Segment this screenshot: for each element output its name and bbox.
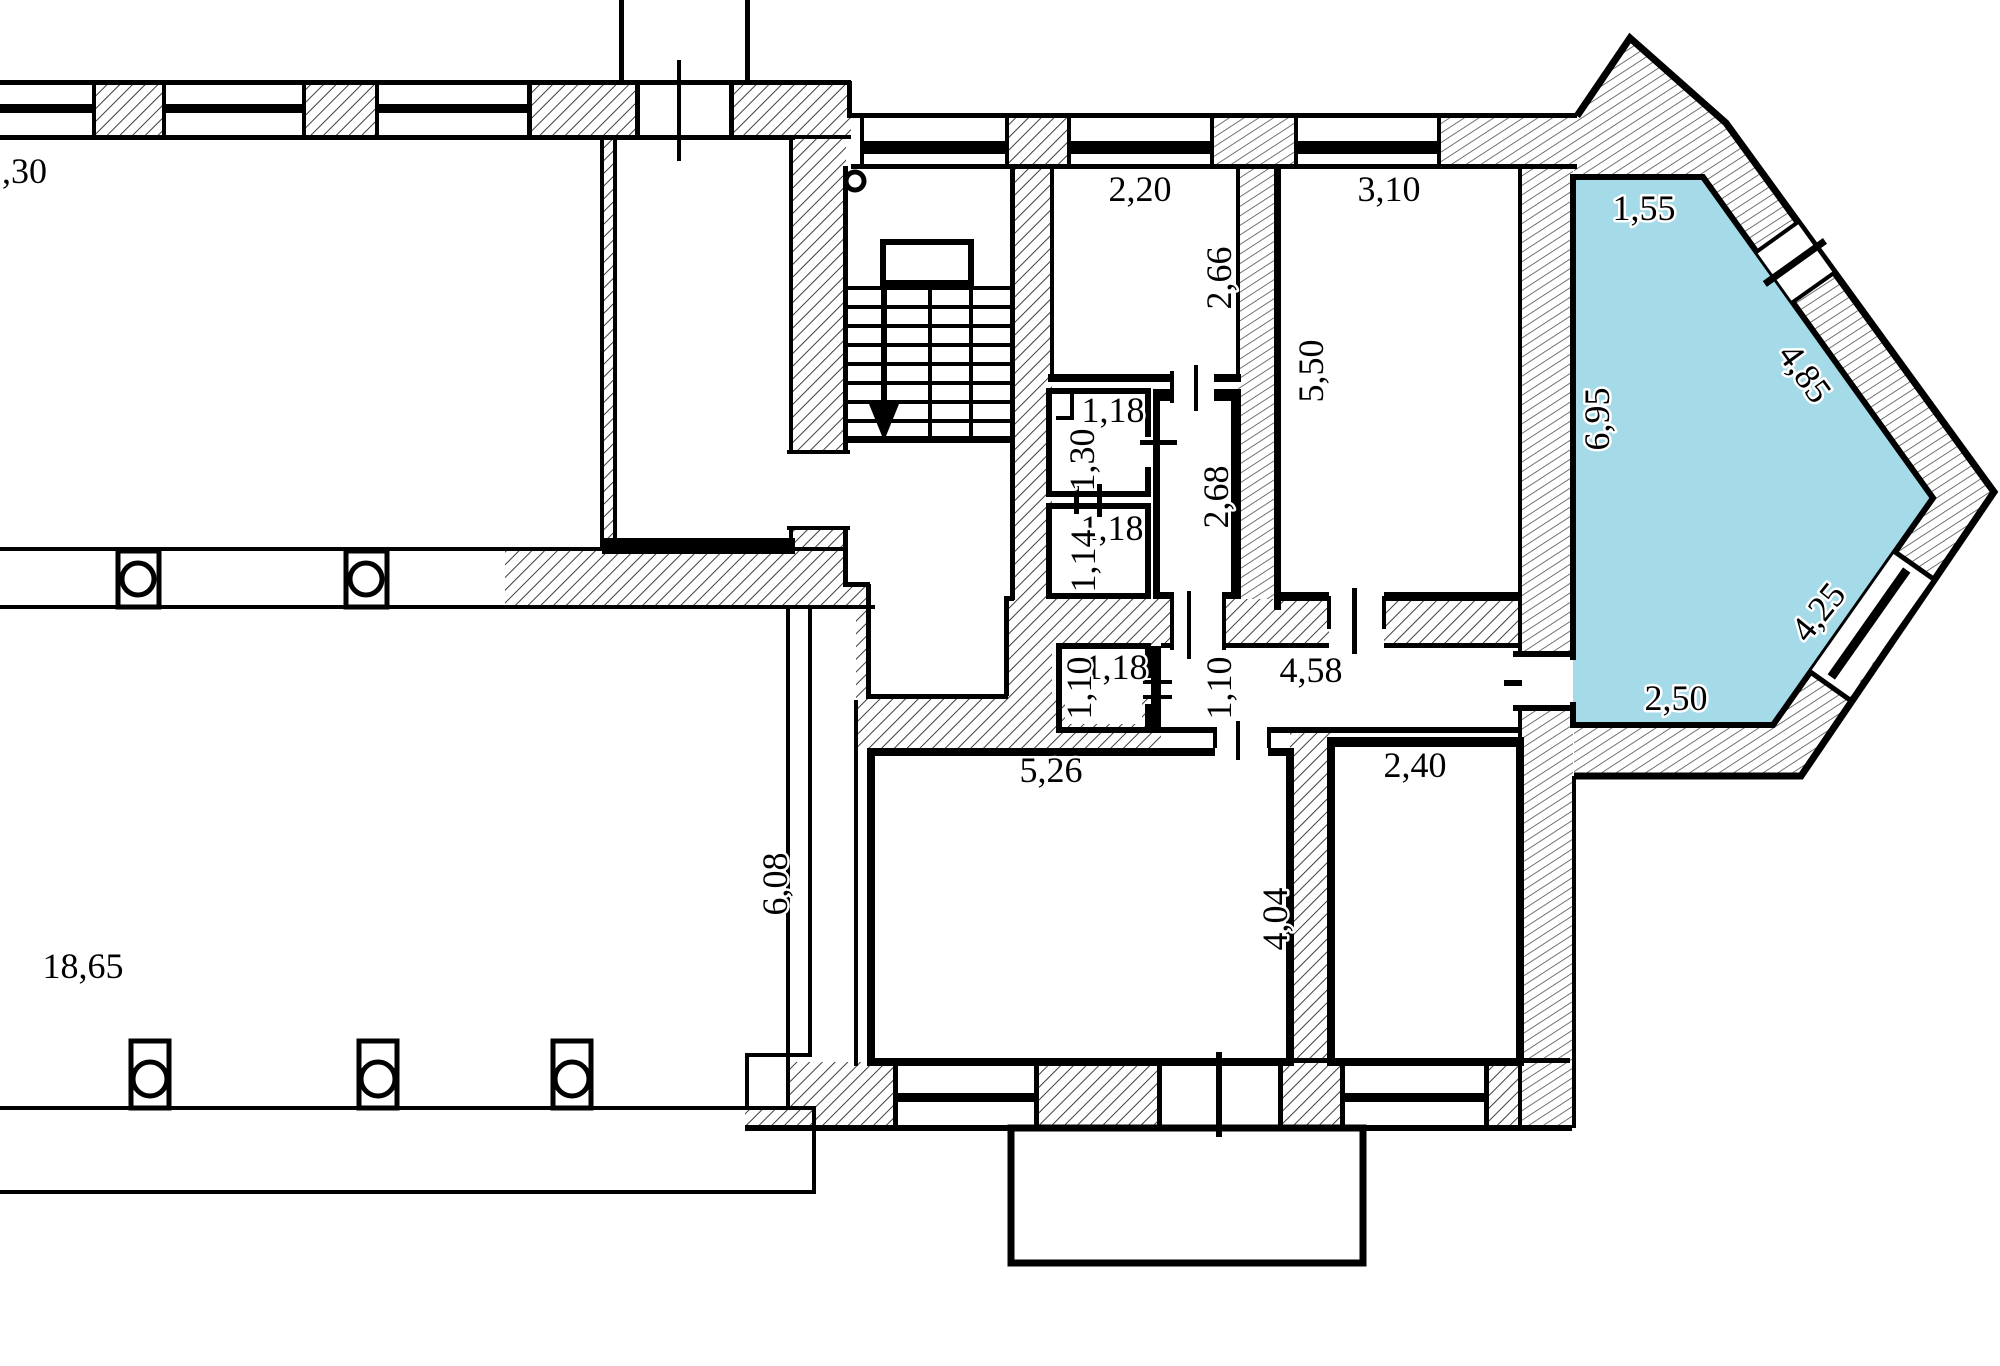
svg-text:2,68: 2,68: [1196, 466, 1236, 529]
svg-text:4,58: 4,58: [1280, 650, 1343, 690]
svg-text:6,08: 6,08: [755, 853, 795, 916]
svg-text:2,66: 2,66: [1199, 247, 1239, 310]
svg-text:18,65: 18,65: [43, 946, 124, 986]
svg-text:1,18: 1,18: [1082, 390, 1145, 430]
svg-text:2,20: 2,20: [1109, 169, 1172, 209]
svg-text:6,95: 6,95: [1577, 388, 1617, 451]
svg-text:5,50: 5,50: [1291, 340, 1331, 403]
svg-text:,30: ,30: [2, 151, 47, 191]
svg-text:1,10: 1,10: [1199, 657, 1239, 720]
svg-text:3,10: 3,10: [1358, 169, 1421, 209]
svg-text:1,14: 1,14: [1063, 530, 1103, 593]
svg-text:1,30: 1,30: [1062, 429, 1102, 492]
svg-text:2,50: 2,50: [1645, 678, 1708, 718]
svg-text:4,04: 4,04: [1255, 888, 1295, 951]
svg-text:2,40: 2,40: [1384, 745, 1447, 785]
svg-text:1,10: 1,10: [1059, 657, 1099, 720]
svg-text:1,55: 1,55: [1613, 188, 1676, 228]
svg-text:5,26: 5,26: [1020, 750, 1083, 790]
